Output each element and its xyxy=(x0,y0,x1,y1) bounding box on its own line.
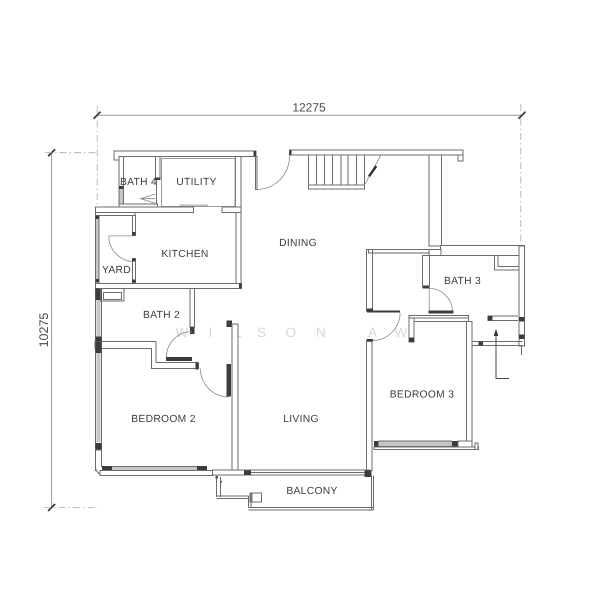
svg-text:BATH 2: BATH 2 xyxy=(143,310,180,321)
svg-text:I: I xyxy=(209,325,213,340)
svg-text:S: S xyxy=(257,325,266,340)
svg-text:12275: 12275 xyxy=(292,101,326,115)
svg-text:10275: 10275 xyxy=(37,313,51,348)
svg-text:BATH 4: BATH 4 xyxy=(120,177,157,188)
svg-text:KITCHEN: KITCHEN xyxy=(161,249,208,260)
svg-text:DINING: DINING xyxy=(279,238,317,249)
svg-text:BALCONY: BALCONY xyxy=(286,486,337,497)
svg-text:BATH 3: BATH 3 xyxy=(444,276,481,287)
svg-text:LIVING: LIVING xyxy=(283,414,319,425)
svg-text:W: W xyxy=(176,325,189,340)
svg-text:BEDROOM 2: BEDROOM 2 xyxy=(131,414,196,425)
svg-text:N: N xyxy=(316,325,326,340)
svg-text:UTILITY: UTILITY xyxy=(176,177,216,188)
svg-text:O: O xyxy=(286,325,297,340)
svg-text:A: A xyxy=(368,325,377,340)
svg-text:BEDROOM 3: BEDROOM 3 xyxy=(390,390,455,401)
svg-text:YARD: YARD xyxy=(102,265,131,276)
